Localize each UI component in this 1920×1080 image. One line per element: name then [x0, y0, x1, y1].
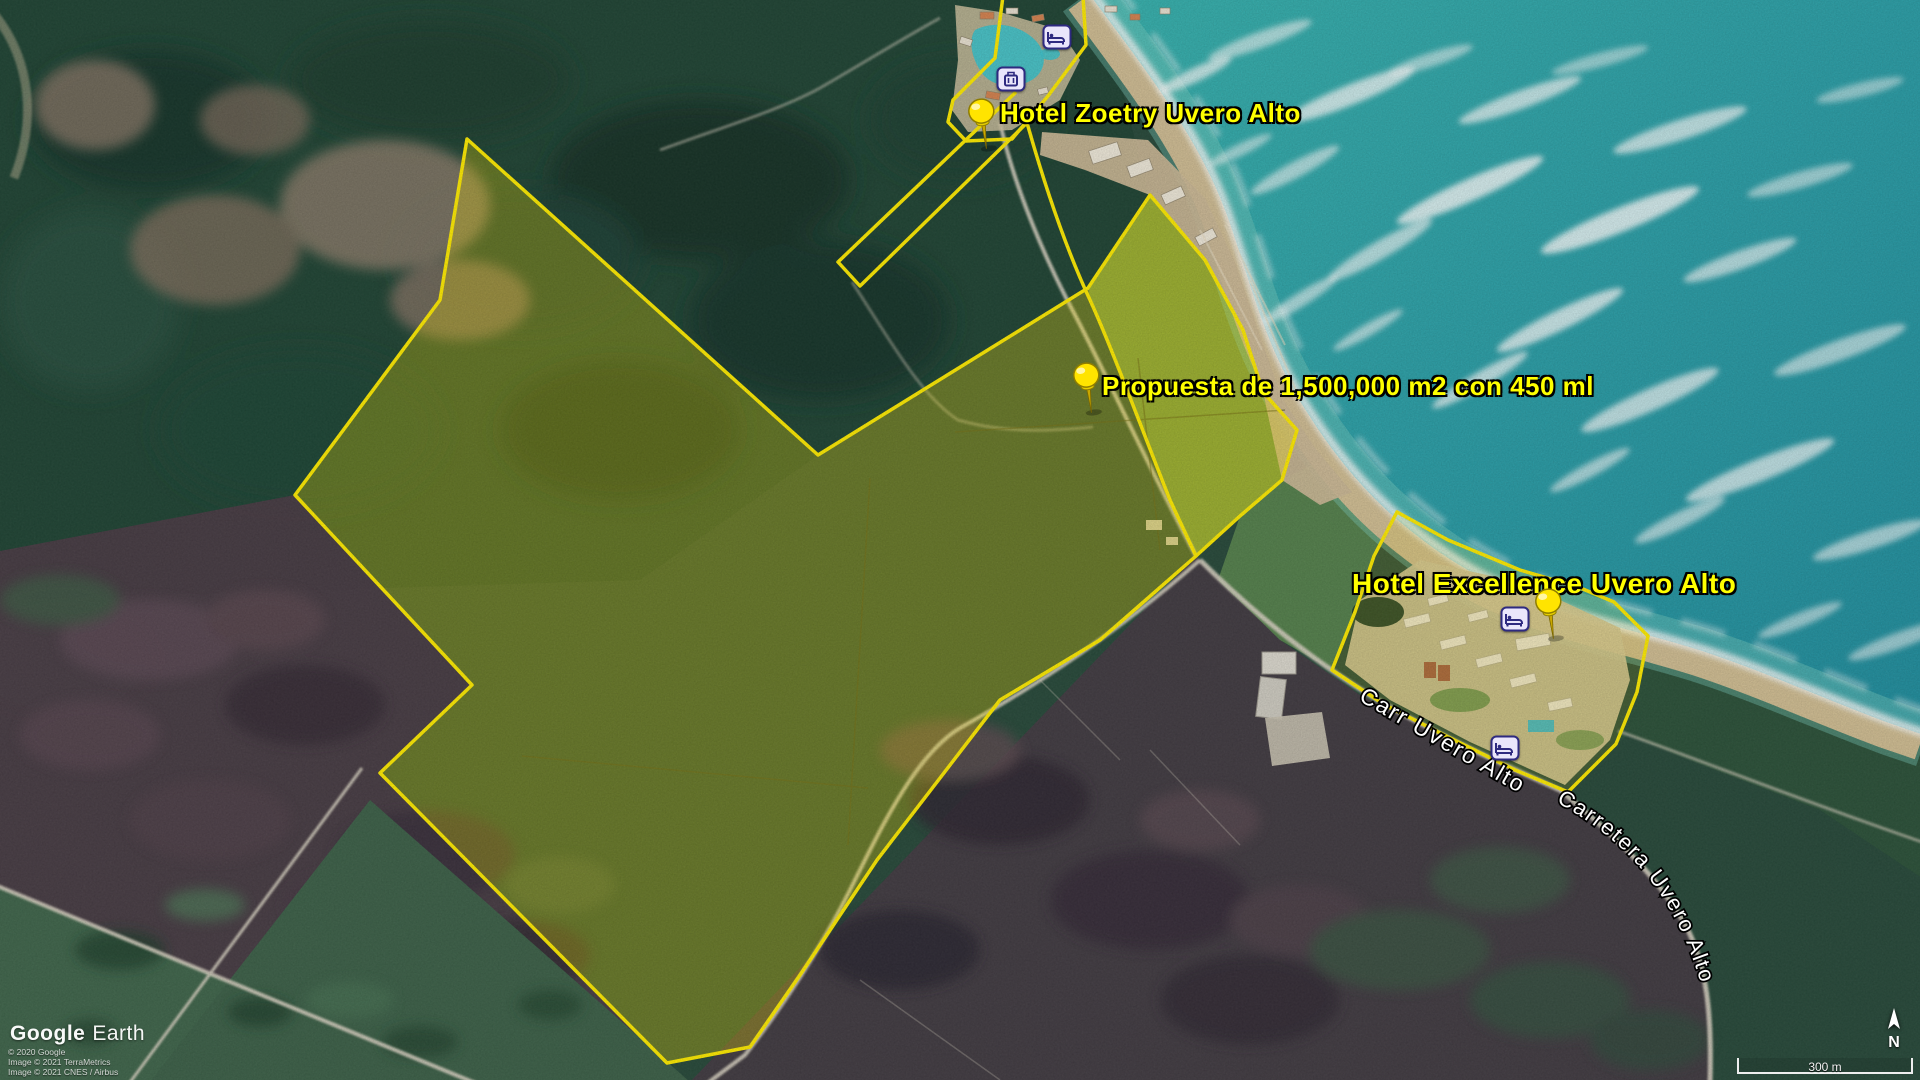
placemark-label-propuesta[interactable]: Propuesta de 1,500,000 m2 con 450 ml — [1102, 371, 1594, 402]
lodging-bed-icon[interactable] — [1500, 606, 1530, 632]
logo-word-earth: Earth — [92, 1022, 145, 1045]
attribution-line: Image © 2021 CNES / Airbus — [8, 1067, 118, 1077]
google-earth-logo: GoogleEarth — [10, 1022, 145, 1046]
grain-light — [0, 0, 1920, 1080]
scale-bar-label: 300 m — [1808, 1060, 1841, 1074]
attribution-line: Image © 2021 TerraMetrics — [8, 1057, 118, 1067]
satellite-map-canvas[interactable]: Carr Uvero Alto Carretera Uvero Alto — [0, 0, 1920, 1080]
google-earth-viewport[interactable]: Carr Uvero Alto Carretera Uvero Alto Hot… — [0, 0, 1920, 1080]
logo-word-google: Google — [10, 1022, 85, 1045]
imagery-attribution: © 2020 Google Image © 2021 TerraMetrics … — [8, 1047, 118, 1077]
placemark-label-zoetry[interactable]: Hotel Zoetry Uvero Alto — [1000, 98, 1301, 129]
yellow-pushpin-icon[interactable] — [1525, 584, 1576, 647]
north-arrow-icon — [1884, 1008, 1904, 1030]
scale-bar: 300 m — [1737, 1058, 1913, 1074]
north-indicator: N — [1882, 1008, 1906, 1050]
lodging-bed-icon[interactable] — [1042, 24, 1072, 50]
luggage-icon[interactable] — [996, 66, 1026, 92]
attribution-line: © 2020 Google — [8, 1047, 118, 1057]
lodging-bed-icon[interactable] — [1490, 735, 1520, 761]
north-label: N — [1882, 1036, 1906, 1050]
